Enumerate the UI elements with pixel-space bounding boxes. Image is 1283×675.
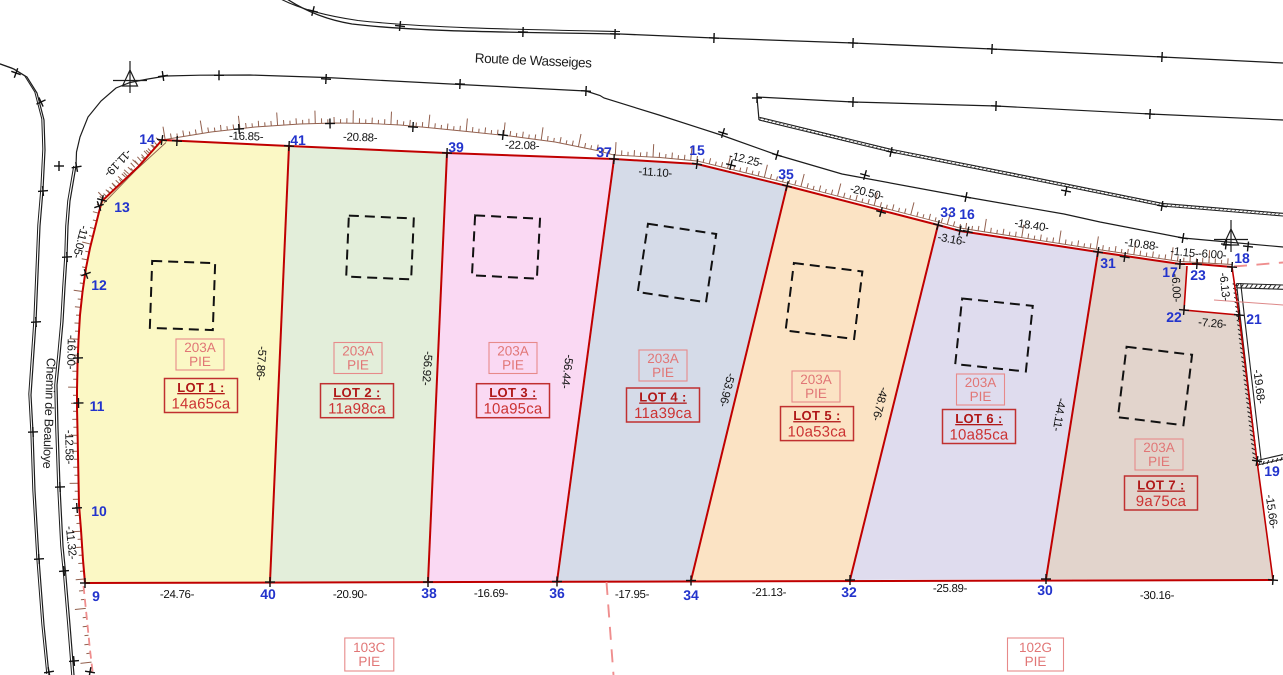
svg-text:18: 18 bbox=[1234, 250, 1250, 266]
svg-text:LOT 6 :: LOT 6 : bbox=[955, 411, 1003, 426]
svg-text:-25.89-: -25.89- bbox=[933, 583, 968, 595]
svg-text:33: 33 bbox=[940, 204, 956, 220]
svg-text:31: 31 bbox=[1100, 255, 1116, 271]
svg-text:PIE: PIE bbox=[805, 386, 827, 401]
svg-text:32: 32 bbox=[841, 584, 857, 600]
svg-text:14: 14 bbox=[139, 131, 155, 147]
svg-text:-57.86-: -57.86- bbox=[253, 346, 267, 382]
svg-text:PIE: PIE bbox=[502, 358, 524, 373]
svg-text:LOT 2 :: LOT 2 : bbox=[333, 385, 381, 400]
svg-text:PIE: PIE bbox=[1025, 654, 1047, 669]
svg-text:19: 19 bbox=[1264, 463, 1280, 479]
svg-text:LOT 1 :: LOT 1 : bbox=[177, 380, 225, 395]
svg-text:102G: 102G bbox=[1019, 640, 1052, 655]
svg-text:9: 9 bbox=[92, 588, 100, 604]
svg-text:16: 16 bbox=[959, 206, 975, 222]
svg-text:11a98ca: 11a98ca bbox=[328, 401, 386, 418]
svg-text:-6.00-: -6.00- bbox=[1169, 273, 1182, 302]
svg-text:14a65ca: 14a65ca bbox=[172, 396, 231, 413]
svg-text:38: 38 bbox=[421, 585, 437, 601]
svg-text:-11.10-: -11.10- bbox=[638, 166, 673, 180]
svg-text:203A: 203A bbox=[647, 351, 679, 366]
svg-text:-22.08-: -22.08- bbox=[505, 139, 540, 152]
svg-text:PIE: PIE bbox=[347, 358, 369, 373]
svg-text:34: 34 bbox=[683, 587, 699, 603]
svg-text:-56.92-: -56.92- bbox=[419, 351, 433, 387]
svg-text:PIE: PIE bbox=[189, 354, 211, 369]
svg-text:-20.90-: -20.90- bbox=[333, 589, 368, 601]
svg-text:-30.16-: -30.16- bbox=[1140, 590, 1175, 602]
svg-text:LOT 4 :: LOT 4 : bbox=[639, 390, 687, 405]
svg-text:203A: 203A bbox=[184, 340, 216, 355]
svg-text:LOT 7 :: LOT 7 : bbox=[1137, 478, 1185, 493]
svg-text:11: 11 bbox=[90, 398, 105, 414]
svg-text:30: 30 bbox=[1037, 582, 1053, 598]
svg-text:-16.85-: -16.85- bbox=[229, 130, 264, 143]
svg-text:-17.95-: -17.95- bbox=[615, 589, 650, 601]
svg-text:36: 36 bbox=[549, 585, 565, 601]
svg-text:39: 39 bbox=[448, 139, 464, 155]
svg-text:15: 15 bbox=[689, 142, 705, 158]
svg-text:10: 10 bbox=[91, 503, 107, 519]
svg-text:LOT 5 :: LOT 5 : bbox=[793, 408, 841, 423]
svg-text:PIE: PIE bbox=[652, 365, 674, 380]
svg-text:40: 40 bbox=[260, 586, 276, 602]
svg-text:-21.13-: -21.13- bbox=[752, 587, 787, 599]
svg-text:203A: 203A bbox=[497, 344, 529, 359]
svg-text:9a75ca: 9a75ca bbox=[1136, 493, 1187, 510]
svg-text:-16.00-: -16.00- bbox=[64, 335, 77, 370]
svg-text:LOT 3 :: LOT 3 : bbox=[489, 385, 537, 400]
svg-text:PIE: PIE bbox=[970, 389, 992, 404]
svg-text:35: 35 bbox=[778, 166, 794, 182]
svg-text:10a85ca: 10a85ca bbox=[950, 427, 1009, 444]
svg-text:22: 22 bbox=[1166, 309, 1182, 325]
svg-text:-6.00-: -6.00- bbox=[1198, 248, 1227, 262]
svg-text:PIE: PIE bbox=[358, 654, 380, 669]
svg-text:-16.69-: -16.69- bbox=[474, 588, 509, 600]
svg-text:10a53ca: 10a53ca bbox=[788, 424, 847, 441]
svg-text:12: 12 bbox=[91, 277, 107, 293]
svg-text:41: 41 bbox=[290, 132, 306, 148]
svg-text:-7.26-: -7.26- bbox=[1198, 317, 1228, 331]
svg-text:-24.76-: -24.76- bbox=[160, 589, 195, 601]
svg-text:203A: 203A bbox=[965, 375, 997, 390]
svg-text:13: 13 bbox=[114, 199, 130, 215]
svg-text:PIE: PIE bbox=[1148, 454, 1170, 469]
svg-text:11a39ca: 11a39ca bbox=[634, 405, 692, 422]
svg-text:37: 37 bbox=[596, 144, 612, 160]
svg-text:21: 21 bbox=[1246, 311, 1262, 327]
svg-text:10a95ca: 10a95ca bbox=[484, 401, 543, 418]
svg-text:203A: 203A bbox=[342, 344, 374, 359]
svg-text:-12.58-: -12.58- bbox=[62, 430, 75, 465]
svg-text:23: 23 bbox=[1190, 267, 1206, 283]
svg-text:103C: 103C bbox=[353, 640, 386, 655]
svg-text:203A: 203A bbox=[800, 372, 832, 387]
svg-text:-20.88-: -20.88- bbox=[343, 131, 378, 144]
svg-text:203A: 203A bbox=[1143, 440, 1175, 455]
